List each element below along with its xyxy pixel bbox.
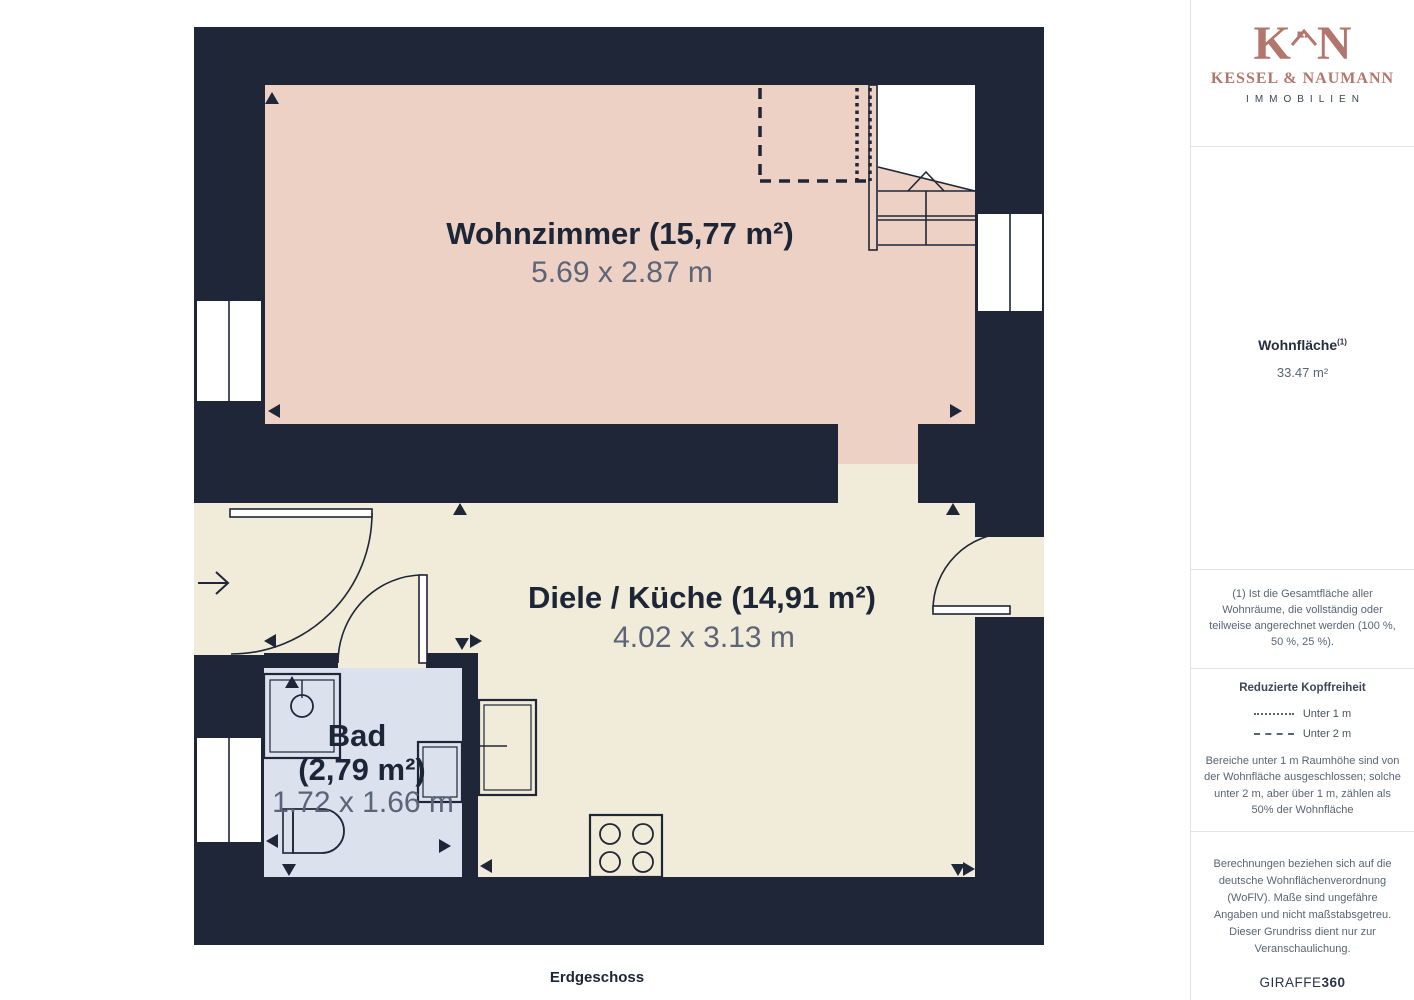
disclaimer-text: Berechnungen beziehen sich auf die deuts… — [1205, 856, 1400, 958]
logo-letter-n: N — [1317, 20, 1352, 68]
living-area-label-text: Wohnfläche — [1258, 337, 1337, 353]
headroom-title: Reduzierte Kopffreiheit — [1239, 682, 1366, 694]
info-sidebar: K N KESSEL & NAUMANN IMMOBILIEN Wohnfläc… — [1190, 0, 1414, 1000]
reduced-headroom-legend: Reduzierte Kopffreiheit Unter 1 m Unter … — [1191, 669, 1414, 832]
window-wohnzimmer-right — [977, 213, 1043, 312]
wohnzimmer-title: Wohnzimmer (15,77 m²) — [446, 216, 793, 251]
legend-under-1m-label: Unter 1 m — [1303, 708, 1351, 720]
diele-title: Diele / Küche (14,91 m²) — [528, 580, 876, 615]
diele-dims: 4.02 x 3.13 m — [613, 621, 795, 654]
floorplan-svg: Wohnzimmer (15,77 m²) 5.69 x 2.87 m Diel… — [0, 0, 1190, 1000]
window-wohnzimmer-left — [196, 300, 262, 402]
floor-level-label: Erdgeschoss — [550, 969, 644, 986]
dotted-line-icon — [1254, 713, 1294, 715]
agency-name: KESSEL & NAUMANN — [1211, 70, 1394, 88]
house-icon — [1289, 25, 1319, 49]
floorplan-canvas: Wohnzimmer (15,77 m²) 5.69 x 2.87 m Diel… — [0, 0, 1190, 1000]
agency-tagline: IMMOBILIEN — [1240, 94, 1365, 105]
legend-under-1m: Unter 1 m — [1254, 708, 1351, 720]
logo-monogram: K N — [1253, 20, 1351, 68]
giraffe360-left: GIRAFFE — [1259, 975, 1321, 990]
bad-title-line1: Bad — [328, 718, 387, 753]
living-area-value: 33.47 m² — [1277, 365, 1328, 380]
legend-under-2m-label: Unter 2 m — [1303, 728, 1351, 740]
giraffe360-logo: GIRAFFE360 — [1259, 975, 1345, 990]
bad-title-line2: (2,79 m²) — [298, 752, 425, 787]
disclaimer-block: Berechnungen beziehen sich auf die deuts… — [1191, 832, 1414, 1000]
dashed-line-icon — [1254, 733, 1294, 735]
living-area-footnote-marker: (1) — [1337, 337, 1347, 346]
wohnzimmer-dims: 5.69 x 2.87 m — [531, 256, 713, 289]
bad-dims: 1.72 x 1.66 m — [272, 786, 454, 819]
living-area-summary: Wohnfläche(1) 33.47 m² — [1191, 147, 1414, 570]
legend-under-2m: Unter 2 m — [1254, 728, 1351, 740]
giraffe360-right: 360 — [1321, 975, 1345, 990]
living-area-label: Wohnfläche(1) — [1258, 337, 1347, 353]
headroom-note: Bereiche unter 1 m Raumhöhe sind von der… — [1203, 753, 1402, 819]
window-bad — [196, 737, 262, 843]
logo-letter-k: K — [1253, 20, 1290, 68]
agency-logo: K N KESSEL & NAUMANN IMMOBILIEN — [1191, 0, 1414, 147]
area-footnote-text: (1) Ist die Gesamtfläche aller Wohnräume… — [1207, 587, 1398, 651]
area-footnote: (1) Ist die Gesamtfläche aller Wohnräume… — [1191, 570, 1414, 669]
